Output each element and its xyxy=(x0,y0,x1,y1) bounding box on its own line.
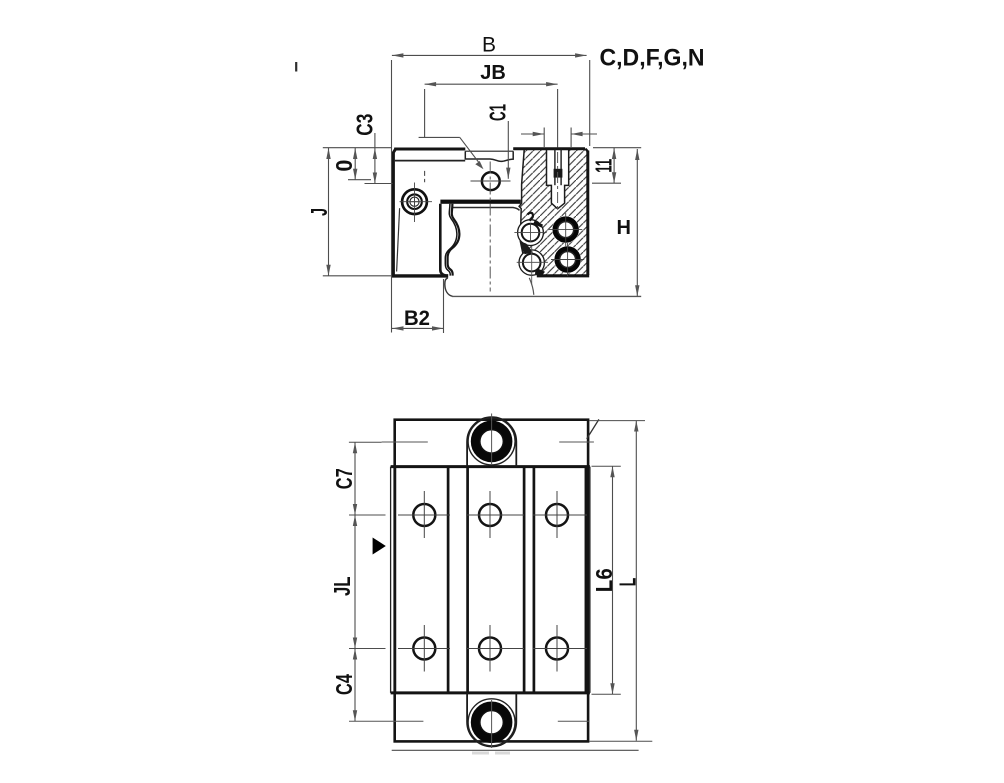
svg-text:JL: JL xyxy=(329,577,355,597)
svg-text:JB: JB xyxy=(480,62,506,84)
svg-text:C4: C4 xyxy=(331,674,357,695)
svg-text:B: B xyxy=(482,34,496,57)
svg-text:11: 11 xyxy=(591,159,617,173)
svg-text:C,D,F,G,N: C,D,F,G,N xyxy=(600,45,705,72)
svg-text:H: H xyxy=(617,217,631,239)
svg-text:C3: C3 xyxy=(352,114,378,136)
svg-text:C7: C7 xyxy=(331,468,357,489)
svg-text:B2: B2 xyxy=(404,307,430,330)
svg-text:C1: C1 xyxy=(485,104,511,121)
